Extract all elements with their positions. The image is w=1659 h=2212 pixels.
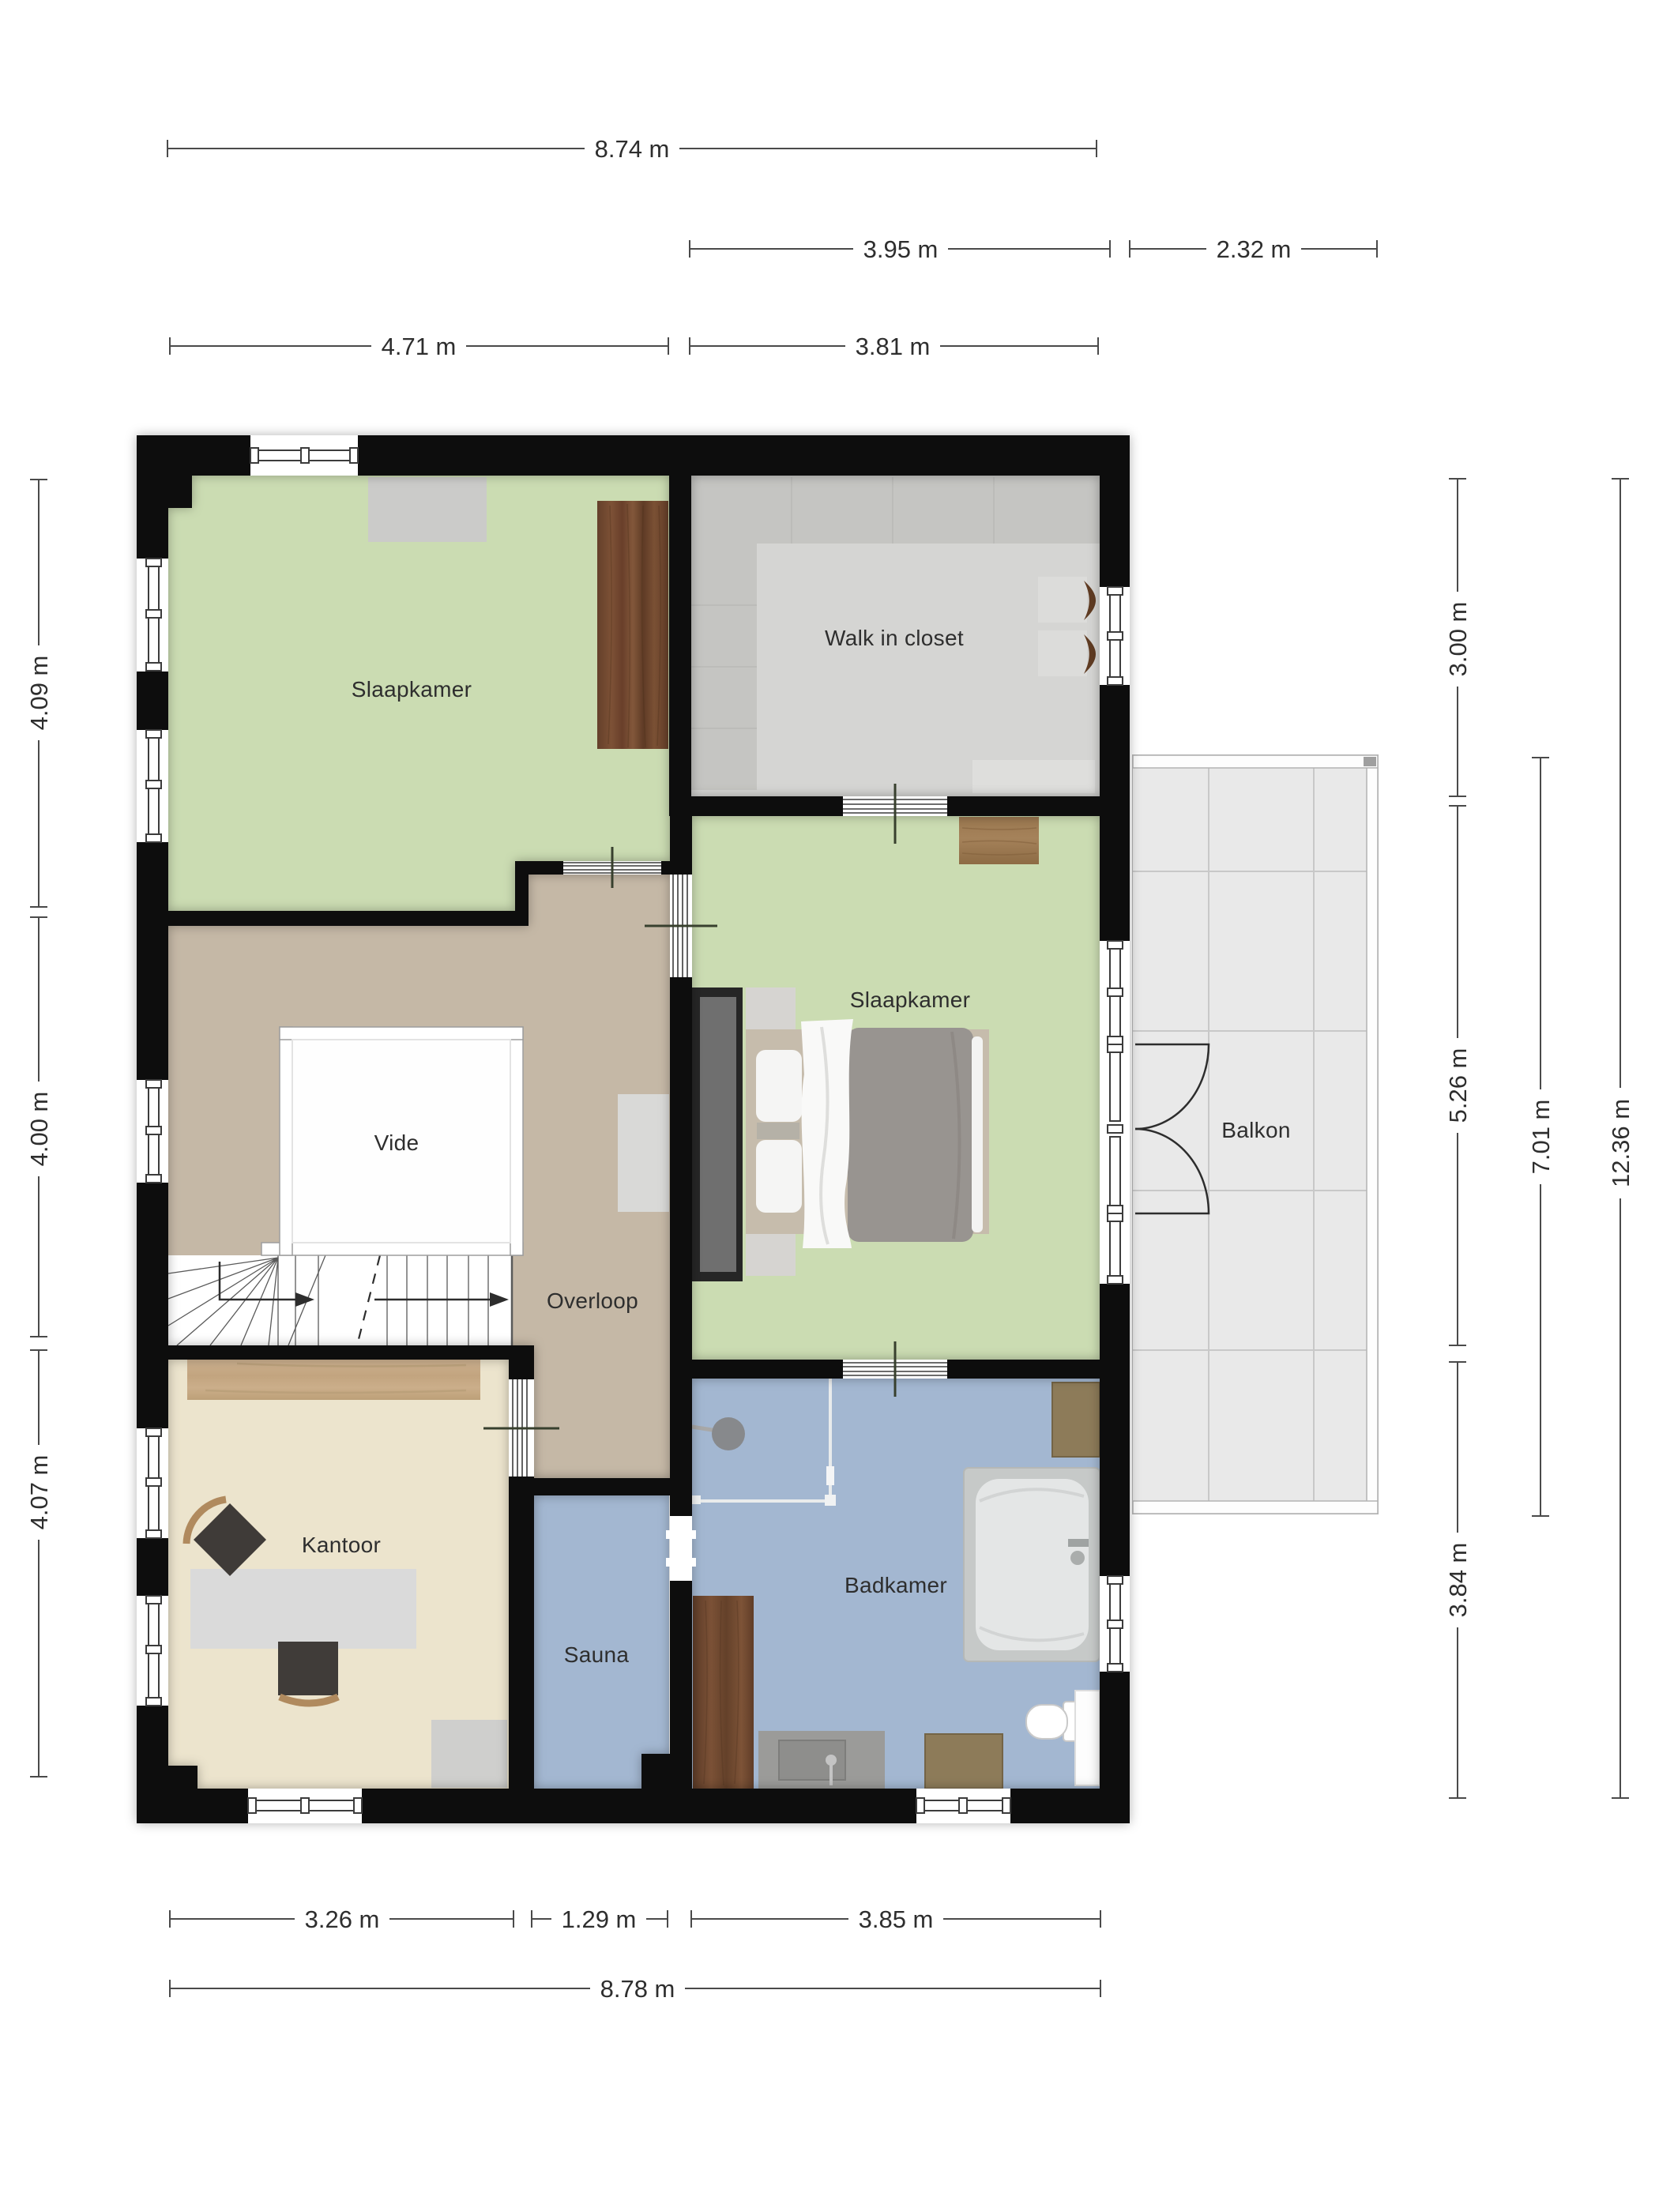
- svg-text:4.09 m: 4.09 m: [25, 656, 53, 731]
- svg-text:5.26 m: 5.26 m: [1444, 1048, 1472, 1123]
- svg-text:Overloop: Overloop: [547, 1288, 638, 1313]
- svg-text:2.32 m: 2.32 m: [1217, 235, 1292, 263]
- svg-text:Vide: Vide: [374, 1130, 419, 1155]
- svg-text:Balkon: Balkon: [1221, 1118, 1290, 1142]
- svg-text:3.00 m: 3.00 m: [1444, 602, 1472, 677]
- svg-text:3.84 m: 3.84 m: [1444, 1543, 1472, 1618]
- svg-text:Kantoor: Kantoor: [302, 1533, 381, 1557]
- svg-text:4.00 m: 4.00 m: [25, 1092, 53, 1167]
- svg-text:Slaapkamer: Slaapkamer: [352, 677, 472, 702]
- svg-text:Walk in closet: Walk in closet: [825, 626, 964, 650]
- svg-text:3.85 m: 3.85 m: [859, 1905, 934, 1933]
- svg-text:1.29 m: 1.29 m: [562, 1905, 637, 1933]
- svg-text:Badkamer: Badkamer: [845, 1573, 947, 1597]
- svg-text:Slaapkamer: Slaapkamer: [850, 987, 970, 1012]
- svg-text:8.78 m: 8.78 m: [600, 1975, 675, 2003]
- svg-text:Sauna: Sauna: [564, 1642, 630, 1667]
- svg-text:4.71 m: 4.71 m: [382, 333, 457, 360]
- svg-text:3.95 m: 3.95 m: [863, 235, 939, 263]
- svg-text:8.74 m: 8.74 m: [595, 135, 670, 163]
- svg-text:4.07 m: 4.07 m: [25, 1455, 53, 1530]
- svg-text:3.26 m: 3.26 m: [305, 1905, 380, 1933]
- svg-text:7.01 m: 7.01 m: [1527, 1100, 1555, 1175]
- svg-text:12.36 m: 12.36 m: [1607, 1099, 1635, 1187]
- svg-text:3.81 m: 3.81 m: [856, 333, 931, 360]
